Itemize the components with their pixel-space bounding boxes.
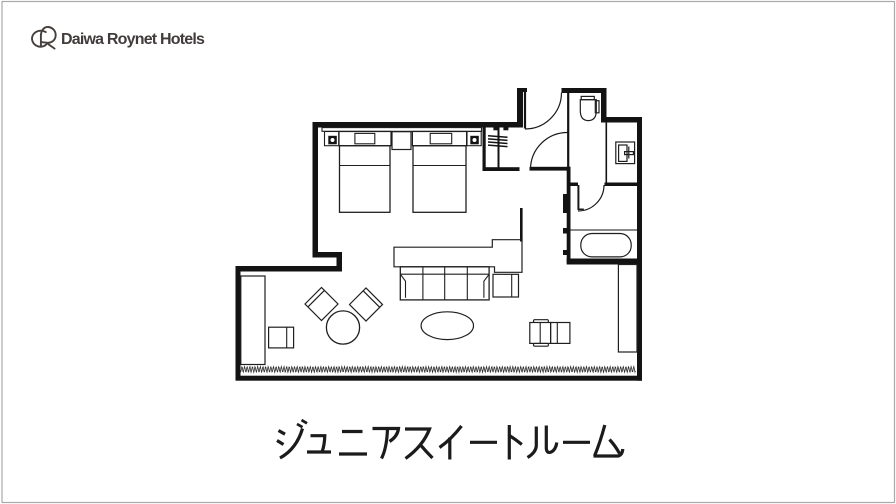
svg-text:Daiwa Roynet Hotels: Daiwa Roynet Hotels [61, 31, 205, 48]
